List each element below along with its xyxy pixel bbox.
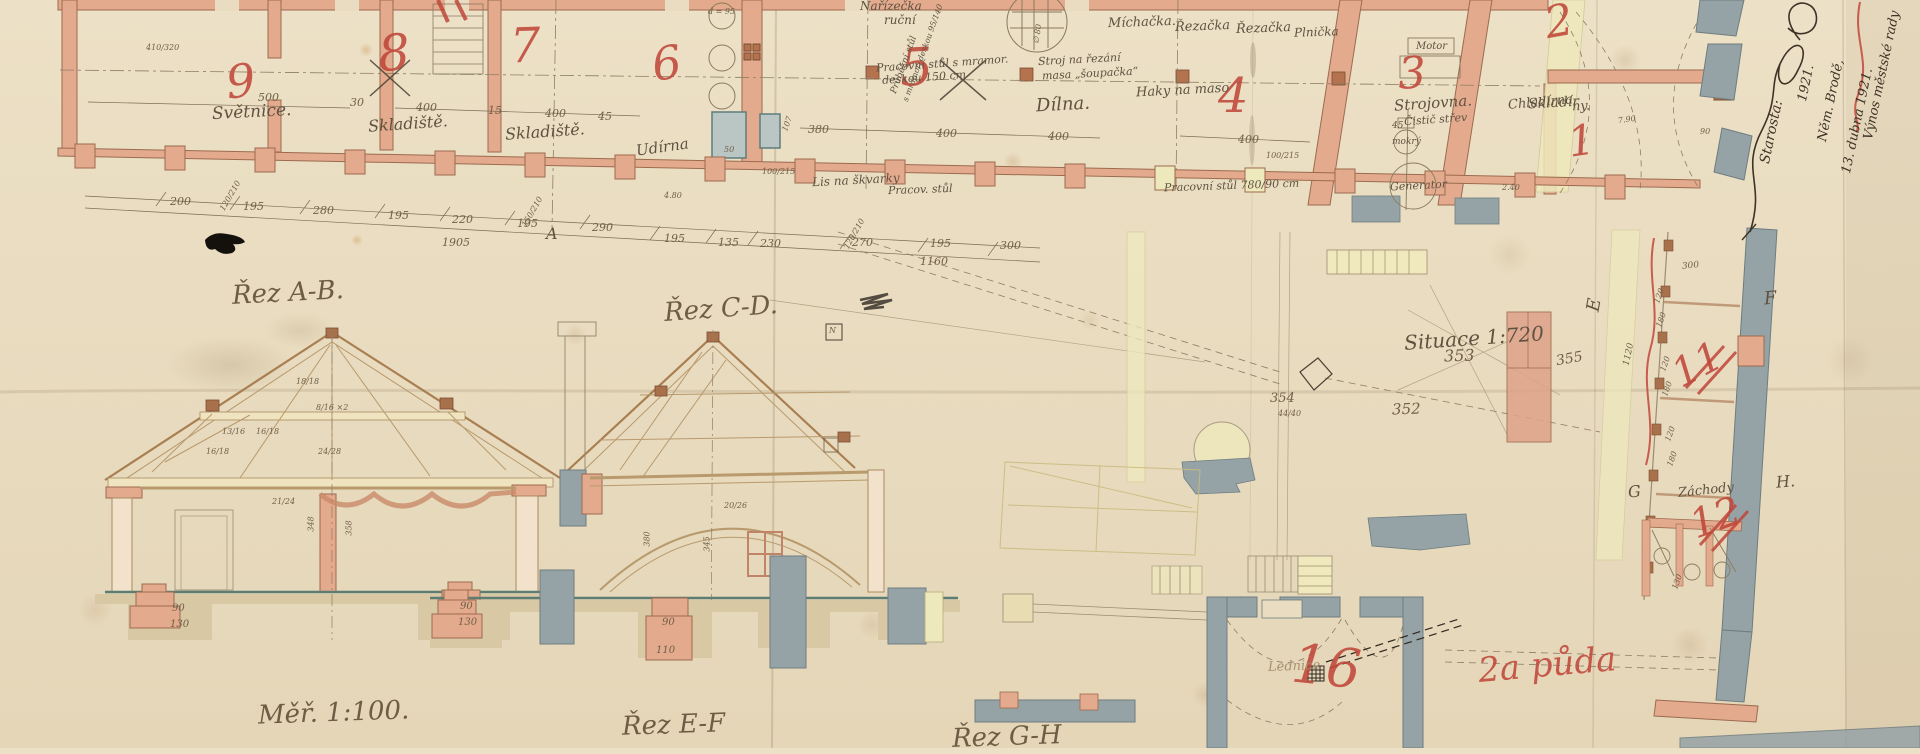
timber-18-18: 18/18 <box>296 378 319 386</box>
wing-dim-130: 130 <box>1671 573 1684 590</box>
timber-13-16: 13/16 <box>222 428 245 436</box>
dim-lower-195b: 195 <box>388 210 409 221</box>
dim-upper-30: 30 <box>350 97 364 108</box>
equip-45: 45 <box>1392 122 1403 131</box>
equip-107: 107 <box>781 115 794 132</box>
dim-small-2: 120/210 <box>219 180 243 213</box>
dim-small-1: 100/215 <box>1266 152 1299 160</box>
height-dim-348: 348 <box>308 516 316 531</box>
elevation-353: 353 <box>1444 347 1475 364</box>
footing-dim-a90: 90 <box>172 604 185 614</box>
dim-lower-200: 200 <box>170 196 191 207</box>
dim-small-90: 90 <box>1700 128 1710 136</box>
equip-stroj-2: masa „šoupačka“ <box>1042 65 1139 81</box>
height-dim-345: 345 <box>704 536 712 551</box>
scanned-architectural-drawing: { "palette": { "paper": "#e9dcc0", "ink"… <box>0 0 1920 748</box>
marker-A: A <box>546 226 558 242</box>
elevation-frac: 44/40 <box>1278 410 1301 418</box>
marker-E: E <box>1585 297 1605 313</box>
height-dim-380: 380 <box>644 531 652 546</box>
timber-24-28: 24/28 <box>318 448 341 456</box>
elevation-355: 355 <box>1555 350 1584 368</box>
room-number-11: 11 <box>1666 335 1730 394</box>
section-title-ef: Řez E-F <box>622 710 726 740</box>
marker-H: H. <box>1775 473 1795 491</box>
wing-dim-180c: 180 <box>1666 450 1679 467</box>
height-dim-358: 358 <box>346 520 354 535</box>
attic-note: 2a půda <box>1477 642 1618 688</box>
dim-total-1905: 1905 <box>442 237 470 248</box>
elevation-352: 352 <box>1392 402 1421 418</box>
equip-michacka: Míchačka. <box>1108 15 1176 30</box>
equip-d95: d = 95 <box>708 8 735 16</box>
equip-prac-stul4-2: Pracovní stůl 780/90 cm <box>1164 178 1300 194</box>
approval-line-3: Něm. Brodě, <box>1816 58 1846 142</box>
dim-upper-400e: 400 <box>1238 134 1259 145</box>
dim-lower-195e: 195 <box>930 238 951 249</box>
room-number-3: 3 <box>1397 51 1427 96</box>
dim-lower-135: 135 <box>718 237 739 248</box>
dim-small-480: 4.80 <box>664 192 682 200</box>
dim-upper-500: 500 <box>258 92 279 103</box>
dim-small-410-320: 410/320 <box>146 44 179 52</box>
room-label-udirna: Udírna <box>635 136 689 158</box>
room-label-skladirny-b: ny. <box>1572 100 1591 114</box>
equip-prum80: ∅ 80 <box>1032 24 1043 45</box>
dim-small-0: 100/215 <box>762 168 795 176</box>
equip-plnicka: Plnička <box>1294 25 1339 39</box>
room-number-9: 9 <box>224 57 258 106</box>
dim-lower-280: 280 <box>313 205 334 216</box>
room-label-dilna: Dílna. <box>1036 95 1091 116</box>
equip-rezacka1: Řezačka <box>1175 19 1230 34</box>
dim-upper-400a: 400 <box>416 102 437 113</box>
section-title-cd: Řez C-D. <box>663 292 778 326</box>
dim-upper-15: 15 <box>488 105 502 116</box>
wing-dim-120a: 120 <box>1653 287 1666 304</box>
wing-dim-180a: 180 <box>1655 311 1668 328</box>
equip-lis: Lis na škvarky <box>812 172 900 189</box>
dim-upper-380: 380 <box>808 124 829 135</box>
timber-21-24: 21/24 <box>272 498 295 506</box>
room-label-skladiste2: Skladiště. <box>505 121 586 143</box>
footing-dim-a130: 130 <box>170 620 189 630</box>
wing-dim-120c: 120 <box>1664 425 1677 442</box>
equip-50: 50 <box>724 146 734 154</box>
dim-lower-300: 300 <box>1000 240 1021 251</box>
approval-line-4: 1921. <box>1796 64 1816 103</box>
label-layer: 9 8 7 6 5 4 3 2 1 16 11 12 2a půda Světn… <box>0 0 1920 748</box>
room-number-2: 2 <box>1541 0 1576 46</box>
marker-G: G <box>1627 483 1641 500</box>
timber-8-16: 8/16 ×2 <box>316 404 348 412</box>
dim-lower-195a: 195 <box>243 201 264 212</box>
elevation-354: 354 <box>1270 392 1295 405</box>
room-label-lednice: Lednice <box>1268 659 1321 674</box>
timber-16-18b: 16/18 <box>206 448 229 456</box>
room-number-6: 6 <box>649 38 684 88</box>
dim-upper-400c: 400 <box>936 128 957 139</box>
dim-upper-400b: 400 <box>545 108 566 119</box>
wing-dim-300: 300 <box>1682 261 1700 272</box>
equip-rezacka2: Řezačka <box>1236 21 1291 36</box>
marker-F: F <box>1763 289 1777 308</box>
room-number-8: 8 <box>376 27 411 79</box>
footing-dim-c90: 90 <box>662 618 675 628</box>
arch-dim-20-26: 20/26 <box>724 502 747 510</box>
starosta-label: Starosta: <box>1758 99 1785 165</box>
timber-16-18a: 16/18 <box>256 428 279 436</box>
section-title-ab: Řez A-B. <box>231 277 344 309</box>
dim-upper-400d: 400 <box>1048 131 1069 142</box>
label-haky-na-maso: Haky na maso <box>1136 82 1230 100</box>
room-label-skladiste1: Skladiště. <box>368 113 449 135</box>
dim-upper-45: 45 <box>598 111 612 122</box>
wing-dim-1120: 1120 <box>1623 342 1637 366</box>
marker-N: N <box>829 327 836 335</box>
room-number-7: 7 <box>509 21 541 70</box>
equip-rucni: ruční <box>884 14 916 26</box>
dim-lower-220: 220 <box>452 214 473 225</box>
equip-cistic: Čistič střev <box>1404 112 1468 127</box>
equip-prac-stul4-1: Pracov. stůl <box>888 183 953 196</box>
room-label-svetnice: Světnice. <box>212 102 292 123</box>
equip-narizecka: Nařízečka <box>860 0 922 12</box>
dim-small-790: 7.90 <box>1618 115 1637 125</box>
dim-lower-230: 230 <box>760 238 781 249</box>
equip-mokry: mokrý <box>1392 138 1421 147</box>
wing-dim-180b: 180 <box>1661 380 1674 397</box>
dim-lower-195d: 195 <box>664 233 685 244</box>
dim-lower-290: 290 <box>592 222 613 233</box>
equip-generator: Generator <box>1390 179 1448 193</box>
room-number-4: 4 <box>1218 72 1249 120</box>
section-title-gh: Řez G-H <box>952 722 1062 752</box>
equip-motor: Motor <box>1416 42 1447 52</box>
equip-stroj-1: Stroj na řezání <box>1038 52 1121 67</box>
room-number-1: 1 <box>1565 118 1597 163</box>
dim-total-1160: 1160 <box>920 256 948 267</box>
footing-dim-b130: 130 <box>458 618 477 628</box>
scale-label: Měř. 1:100. <box>258 697 410 728</box>
dim-small-240: 2.40 <box>1502 184 1520 192</box>
footing-dim-c110: 110 <box>656 646 675 656</box>
footing-dim-b90: 90 <box>460 602 473 612</box>
